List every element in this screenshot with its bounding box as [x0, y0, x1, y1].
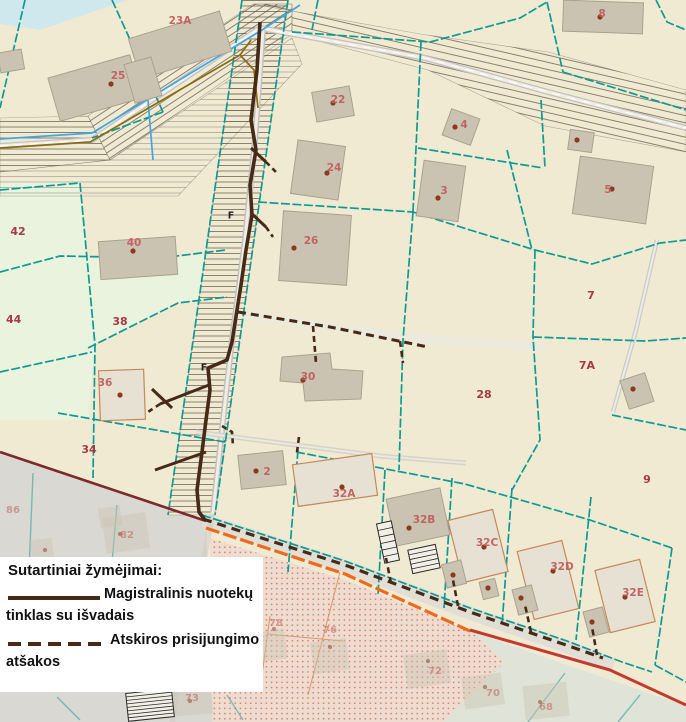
building-26: [279, 211, 352, 286]
survey-dot: [630, 386, 635, 391]
parcel-label: 9: [643, 473, 651, 486]
building-label: 5: [604, 184, 611, 196]
building-label-faint: 86: [6, 505, 20, 516]
building-label-faint: 72: [428, 666, 442, 677]
building-label: 32C: [476, 537, 499, 549]
legend-branch-line-label-1: Atskiros prisijungimo: [110, 632, 259, 648]
parcel-label: 34: [81, 443, 97, 456]
f-marker: F: [228, 211, 235, 222]
f-marker: F: [201, 363, 208, 374]
building-label-faint: 76: [323, 625, 337, 636]
parcel-label: 28: [476, 388, 491, 401]
building-label: 24: [327, 162, 342, 174]
building-label: 32D: [550, 561, 574, 573]
survey-dot: [450, 572, 455, 577]
survey-dot: [406, 525, 411, 530]
legend-panel: Sutartiniai žymėjimai: Magistralinis nuo…: [0, 557, 263, 692]
parcel-label: 42: [10, 225, 25, 238]
survey-dot: [291, 245, 296, 250]
parcel-label: 7A: [579, 359, 596, 372]
parcel-label: 7: [587, 289, 595, 302]
survey-dot: [253, 468, 258, 473]
parcel-label: 38: [112, 315, 127, 328]
building-label-faint: 70: [486, 688, 500, 699]
building-label: 32A: [333, 488, 357, 500]
survey-dot-faint: [426, 659, 430, 663]
building-label: 26: [304, 235, 319, 247]
building-2: [238, 451, 286, 490]
building-label: 30: [301, 371, 316, 383]
legend-branch-line-sample: [8, 642, 106, 646]
building-label: 22: [331, 94, 346, 106]
building-label: 36: [98, 377, 113, 389]
building-label: 3: [440, 185, 447, 197]
building-label-faint: 73: [185, 693, 199, 704]
survey-dot: [108, 81, 113, 86]
building-label-faint: 82: [120, 530, 134, 541]
building-label: 4: [460, 119, 467, 131]
survey-dot: [452, 124, 457, 129]
survey-dot: [518, 595, 523, 600]
building-label-faint: 78: [269, 618, 283, 629]
building-footprint: [0, 49, 25, 73]
legend-main-line-sample: [8, 596, 100, 600]
building-label: 40: [127, 237, 142, 249]
legend-branch-line-label-2: atšakos: [6, 654, 60, 670]
building-label: 32B: [413, 514, 436, 526]
survey-dot: [130, 248, 135, 253]
building-label: 23A: [169, 15, 193, 27]
building-label: 2: [263, 466, 270, 478]
survey-dot-faint: [328, 645, 332, 649]
building-label: 8: [598, 8, 605, 20]
survey-dot: [485, 585, 490, 590]
legend-title: Sutartiniai žymėjimai:: [8, 562, 162, 579]
survey-dot: [117, 392, 122, 397]
legend-main-line-label-1: Magistralinis nuotekų: [104, 586, 253, 602]
building-footprint: [568, 129, 595, 152]
parcel-label: 44: [6, 313, 22, 326]
survey-dot: [589, 619, 594, 624]
legend-main-line-label-2: tinklas su išvadais: [6, 608, 134, 624]
map-viewport: 23A252242438540263630232A32B32C32D32E828…: [0, 0, 686, 722]
building-label: 25: [111, 70, 126, 82]
building-label: 32E: [622, 587, 644, 599]
survey-dot: [574, 137, 579, 142]
building-label-faint: 68: [539, 702, 553, 713]
survey-dot-faint: [43, 548, 47, 552]
